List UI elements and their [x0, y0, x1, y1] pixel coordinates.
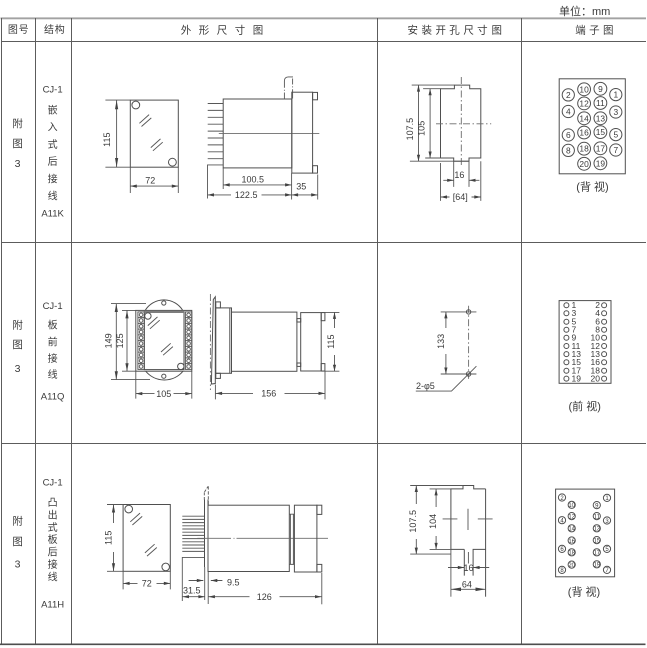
- svg-text:尺: 尺: [463, 24, 474, 36]
- svg-text:出: 出: [48, 508, 58, 521]
- svg-text:构: 构: [55, 23, 65, 36]
- svg-text:3: 3: [15, 363, 21, 375]
- svg-text:115: 115: [104, 531, 114, 545]
- svg-text:18: 18: [568, 551, 575, 557]
- svg-text:16: 16: [568, 539, 575, 545]
- svg-text:126: 126: [257, 592, 272, 602]
- svg-text:线: 线: [48, 368, 58, 381]
- svg-text:14: 14: [579, 113, 589, 123]
- svg-text:后: 后: [48, 156, 58, 168]
- svg-text:64: 64: [462, 579, 472, 589]
- svg-text:式: 式: [48, 138, 58, 151]
- svg-text:端: 端: [575, 23, 586, 36]
- svg-text:7: 7: [613, 145, 618, 155]
- svg-text:3: 3: [15, 559, 21, 571]
- svg-text:8: 8: [566, 145, 571, 155]
- svg-text:14: 14: [568, 527, 575, 533]
- svg-text:接: 接: [48, 352, 58, 365]
- svg-text:16: 16: [579, 128, 589, 138]
- svg-text:CJ-1: CJ-1: [43, 477, 63, 488]
- svg-text:图: 图: [491, 24, 502, 36]
- svg-text:(前 视): (前 视): [569, 399, 601, 413]
- svg-text:72: 72: [142, 579, 152, 589]
- svg-text:后: 后: [48, 547, 58, 559]
- svg-text:5: 5: [613, 130, 618, 140]
- svg-text:149: 149: [103, 333, 113, 348]
- svg-text:接: 接: [48, 172, 58, 185]
- svg-text:115: 115: [326, 334, 336, 348]
- svg-text:19: 19: [572, 373, 582, 383]
- svg-text:单位：mm: 单位：mm: [559, 4, 610, 18]
- svg-text:13: 13: [596, 113, 606, 123]
- svg-text:号: 号: [19, 24, 29, 36]
- svg-text:20: 20: [568, 563, 575, 569]
- svg-text:100.5: 100.5: [242, 174, 265, 184]
- svg-text:CJ-1: CJ-1: [43, 301, 63, 312]
- svg-text:安: 安: [407, 23, 418, 36]
- svg-text:尺: 尺: [217, 24, 228, 36]
- svg-text:107.5: 107.5: [408, 510, 418, 533]
- svg-text:6: 6: [566, 130, 571, 140]
- svg-text:20: 20: [579, 159, 589, 169]
- svg-text:图: 图: [12, 138, 23, 150]
- svg-text:前: 前: [48, 335, 58, 348]
- svg-text:孔: 孔: [449, 23, 460, 36]
- svg-text:图: 图: [253, 24, 264, 36]
- svg-text:(背 视): (背 视): [568, 585, 600, 599]
- svg-text:3: 3: [15, 158, 21, 170]
- svg-text:寸: 寸: [235, 23, 246, 36]
- svg-text:10: 10: [568, 503, 575, 509]
- svg-text:装: 装: [422, 23, 433, 36]
- svg-text:9.5: 9.5: [227, 577, 240, 587]
- svg-text:接: 接: [48, 558, 58, 571]
- svg-text:16: 16: [454, 170, 464, 180]
- svg-text:20: 20: [591, 373, 601, 383]
- svg-text:结: 结: [44, 23, 54, 36]
- svg-text:105: 105: [417, 121, 427, 136]
- svg-text:板: 板: [48, 318, 58, 331]
- svg-text:(背 视): (背 视): [576, 180, 608, 194]
- svg-text:2: 2: [566, 90, 571, 100]
- svg-text:入: 入: [48, 123, 58, 134]
- svg-text:10: 10: [579, 84, 589, 94]
- svg-text:开: 开: [435, 24, 446, 36]
- svg-text:2-φ5: 2-φ5: [416, 381, 435, 391]
- svg-text:15: 15: [596, 127, 606, 137]
- svg-text:122.5: 122.5: [235, 190, 258, 200]
- svg-text:寸: 寸: [477, 23, 488, 36]
- svg-text:133: 133: [436, 334, 446, 349]
- svg-text:17: 17: [593, 551, 600, 557]
- svg-text:16: 16: [463, 563, 473, 573]
- svg-text:125: 125: [115, 333, 125, 348]
- svg-text:12: 12: [568, 514, 575, 520]
- svg-text:外: 外: [181, 24, 192, 36]
- svg-text:附: 附: [12, 318, 23, 331]
- svg-text:嵌: 嵌: [48, 104, 58, 116]
- svg-text:11: 11: [596, 98, 605, 108]
- svg-text:19: 19: [596, 158, 606, 168]
- svg-text:72: 72: [145, 175, 155, 185]
- svg-text:线: 线: [48, 570, 58, 583]
- svg-text:CJ-1: CJ-1: [43, 84, 63, 95]
- svg-text:104: 104: [428, 514, 438, 529]
- svg-text:A11Q: A11Q: [41, 392, 65, 403]
- svg-text:156: 156: [261, 389, 276, 399]
- svg-text:4: 4: [566, 107, 571, 117]
- svg-text:12: 12: [579, 98, 589, 108]
- svg-text:图: 图: [603, 24, 614, 36]
- svg-text:板: 板: [48, 533, 58, 546]
- svg-text:11: 11: [594, 514, 601, 520]
- svg-text:图: 图: [12, 536, 23, 548]
- svg-text:形: 形: [199, 24, 210, 36]
- svg-text:附: 附: [12, 515, 23, 528]
- svg-text:13: 13: [593, 527, 600, 533]
- svg-text:15: 15: [593, 538, 600, 544]
- svg-text:19: 19: [593, 563, 600, 569]
- svg-text:图: 图: [12, 339, 23, 351]
- svg-text:图: 图: [8, 24, 18, 36]
- svg-text:子: 子: [589, 24, 600, 36]
- svg-text:附: 附: [12, 117, 23, 130]
- svg-text:1: 1: [613, 90, 618, 100]
- svg-text:凸: 凸: [48, 497, 58, 509]
- svg-text:式: 式: [48, 521, 58, 534]
- svg-text:[64]: [64]: [453, 192, 468, 202]
- svg-text:线: 线: [48, 190, 58, 203]
- svg-text:3: 3: [613, 107, 618, 117]
- svg-text:17: 17: [596, 143, 606, 153]
- svg-text:107.5: 107.5: [405, 118, 415, 141]
- svg-text:A11H: A11H: [41, 600, 64, 611]
- svg-text:31.5: 31.5: [183, 585, 201, 595]
- svg-text:35: 35: [296, 182, 306, 192]
- svg-text:18: 18: [579, 144, 589, 154]
- svg-text:105: 105: [156, 389, 171, 399]
- svg-text:9: 9: [598, 84, 603, 94]
- svg-text:A11K: A11K: [41, 209, 64, 220]
- svg-text:115: 115: [102, 133, 112, 147]
